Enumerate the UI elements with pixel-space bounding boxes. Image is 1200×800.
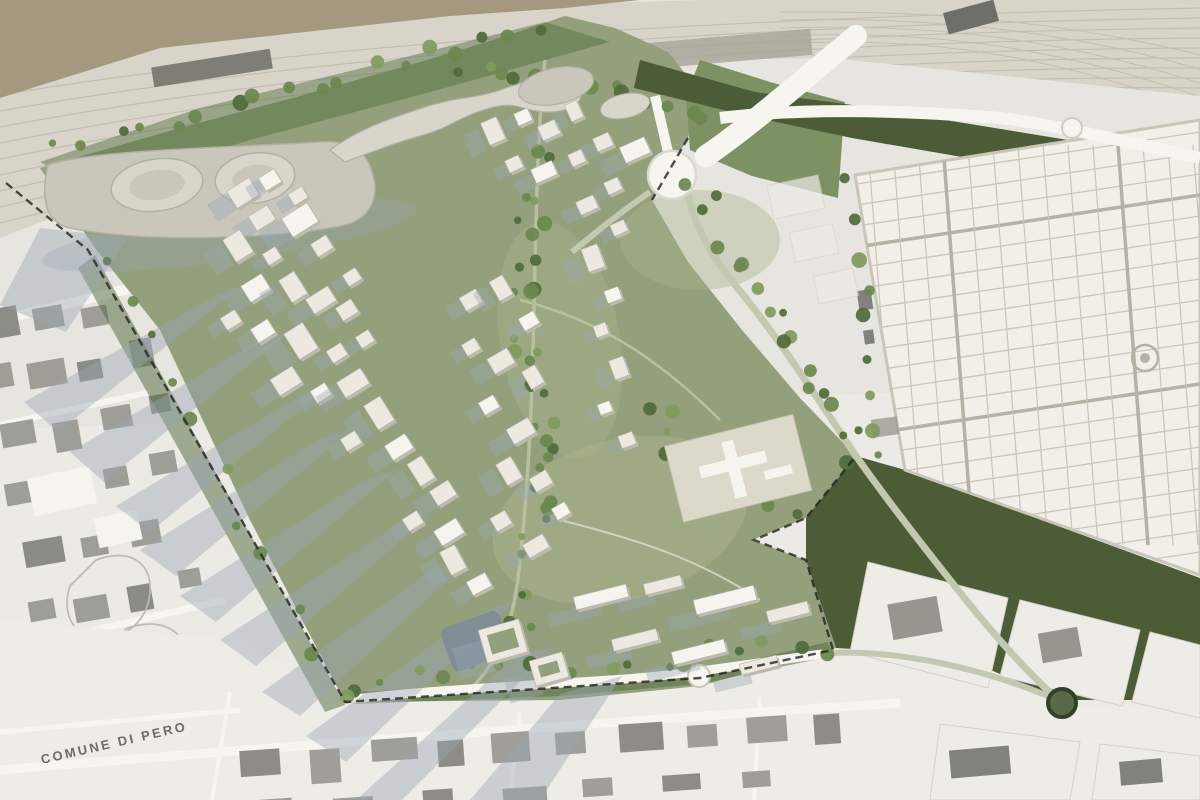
tree bbox=[223, 464, 234, 475]
tree bbox=[148, 331, 156, 339]
tree bbox=[415, 665, 425, 675]
tree bbox=[679, 178, 692, 191]
tree bbox=[295, 604, 305, 614]
tree bbox=[304, 647, 319, 662]
tree bbox=[863, 355, 872, 364]
tree bbox=[518, 533, 525, 540]
roundabout bbox=[1048, 689, 1076, 717]
masterplan-rendering: COMUNE DI PERO bbox=[0, 0, 1200, 800]
tree bbox=[544, 152, 555, 163]
tree bbox=[495, 68, 508, 81]
tree bbox=[663, 428, 670, 435]
tree bbox=[875, 451, 882, 458]
tree bbox=[839, 173, 849, 183]
tree bbox=[436, 670, 450, 684]
tree bbox=[734, 261, 745, 272]
building-footprint bbox=[813, 713, 841, 745]
tree bbox=[533, 348, 542, 357]
cemetery-entrance-building bbox=[863, 329, 875, 344]
tree bbox=[796, 641, 809, 654]
tree bbox=[779, 309, 787, 317]
tree bbox=[824, 397, 839, 412]
tree bbox=[448, 47, 463, 62]
tree bbox=[506, 72, 519, 85]
tree bbox=[752, 282, 765, 295]
tree bbox=[371, 55, 384, 68]
tree bbox=[330, 77, 342, 89]
tree bbox=[710, 241, 724, 255]
tree bbox=[540, 434, 553, 447]
tree bbox=[514, 216, 522, 224]
tree bbox=[777, 334, 791, 348]
tree bbox=[422, 40, 437, 55]
tree bbox=[401, 61, 410, 70]
tree bbox=[530, 255, 541, 266]
tree bbox=[865, 391, 875, 401]
tree bbox=[856, 308, 871, 323]
tree bbox=[526, 228, 540, 242]
building-footprint bbox=[662, 773, 701, 792]
building-footprint bbox=[949, 745, 1011, 778]
tree bbox=[537, 216, 552, 231]
building-footprint bbox=[687, 724, 718, 748]
tree bbox=[697, 204, 708, 215]
tree bbox=[623, 660, 631, 668]
tree bbox=[849, 214, 861, 226]
cemetery-circular-plaza-center bbox=[1140, 353, 1150, 363]
tree bbox=[865, 423, 880, 438]
building-footprint bbox=[618, 722, 664, 753]
tree bbox=[735, 647, 744, 656]
tree bbox=[536, 25, 547, 36]
tree bbox=[75, 140, 86, 151]
tree bbox=[804, 364, 817, 377]
tree bbox=[188, 110, 202, 124]
tree bbox=[543, 452, 553, 462]
tree bbox=[643, 402, 656, 415]
tree bbox=[531, 197, 539, 205]
tree bbox=[535, 463, 544, 472]
tree bbox=[854, 426, 862, 434]
tree bbox=[168, 378, 177, 387]
tree bbox=[792, 509, 802, 519]
tree bbox=[253, 546, 267, 560]
tree bbox=[476, 32, 487, 43]
masterplan-canvas: COMUNE DI PERO bbox=[0, 0, 1200, 800]
tree bbox=[376, 679, 383, 686]
tree bbox=[839, 432, 847, 440]
tree bbox=[500, 30, 514, 44]
tree bbox=[522, 193, 531, 202]
tree bbox=[665, 404, 680, 419]
building-footprint bbox=[746, 715, 788, 744]
tree bbox=[49, 139, 56, 146]
tree bbox=[851, 252, 867, 268]
tree bbox=[803, 382, 815, 394]
tree bbox=[819, 388, 830, 399]
tree bbox=[548, 417, 561, 430]
tree bbox=[527, 623, 535, 631]
tree bbox=[135, 123, 144, 132]
tree bbox=[662, 101, 674, 113]
tree bbox=[711, 190, 722, 201]
tree bbox=[518, 591, 526, 599]
tree bbox=[174, 121, 185, 132]
tree bbox=[119, 126, 129, 136]
tree bbox=[765, 307, 776, 318]
tree bbox=[453, 67, 463, 77]
tree bbox=[540, 389, 549, 398]
building-footprint bbox=[1119, 758, 1163, 786]
tree bbox=[523, 283, 539, 299]
tree bbox=[128, 296, 139, 307]
tree bbox=[244, 89, 259, 104]
tree bbox=[525, 356, 536, 367]
building-footprint bbox=[239, 748, 281, 777]
building-footprint bbox=[582, 777, 613, 797]
roundabout bbox=[1062, 118, 1082, 138]
roundabout-bridge bbox=[648, 151, 696, 199]
tree bbox=[864, 285, 875, 296]
tree bbox=[694, 112, 707, 125]
tree bbox=[232, 522, 241, 531]
tree bbox=[317, 83, 329, 95]
building-footprint bbox=[742, 770, 771, 788]
pavilion-slab bbox=[45, 142, 375, 238]
tree bbox=[283, 82, 295, 94]
tree bbox=[486, 62, 496, 72]
tree bbox=[515, 263, 524, 272]
